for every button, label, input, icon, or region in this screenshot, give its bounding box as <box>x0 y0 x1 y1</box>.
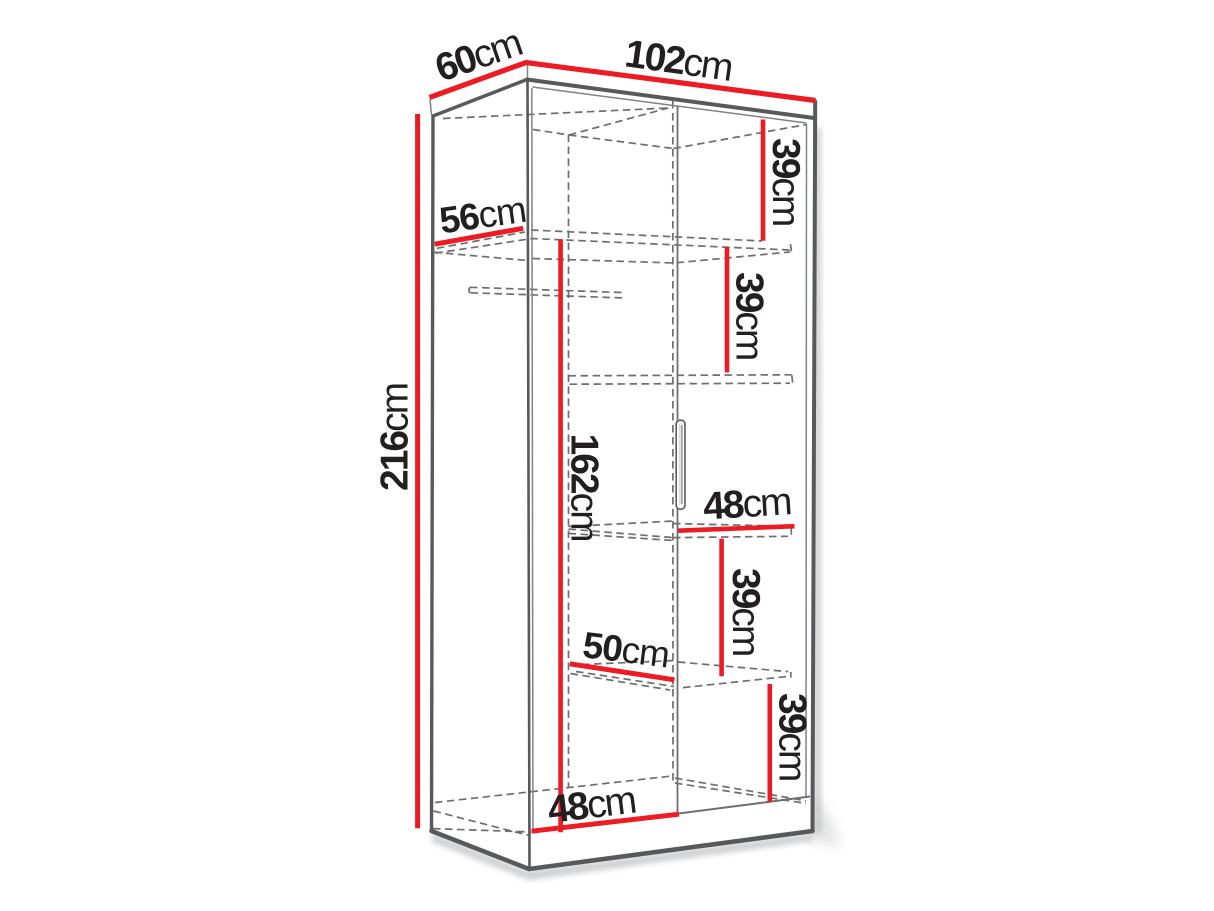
svg-text:162cm: 162cm <box>563 434 606 541</box>
svg-text:48cm: 48cm <box>702 480 792 528</box>
svg-text:216cm: 216cm <box>374 384 417 491</box>
svg-text:39cm: 39cm <box>724 568 767 655</box>
svg-text:39cm: 39cm <box>764 138 807 225</box>
svg-text:39cm: 39cm <box>771 693 814 780</box>
svg-text:39cm: 39cm <box>728 272 771 359</box>
